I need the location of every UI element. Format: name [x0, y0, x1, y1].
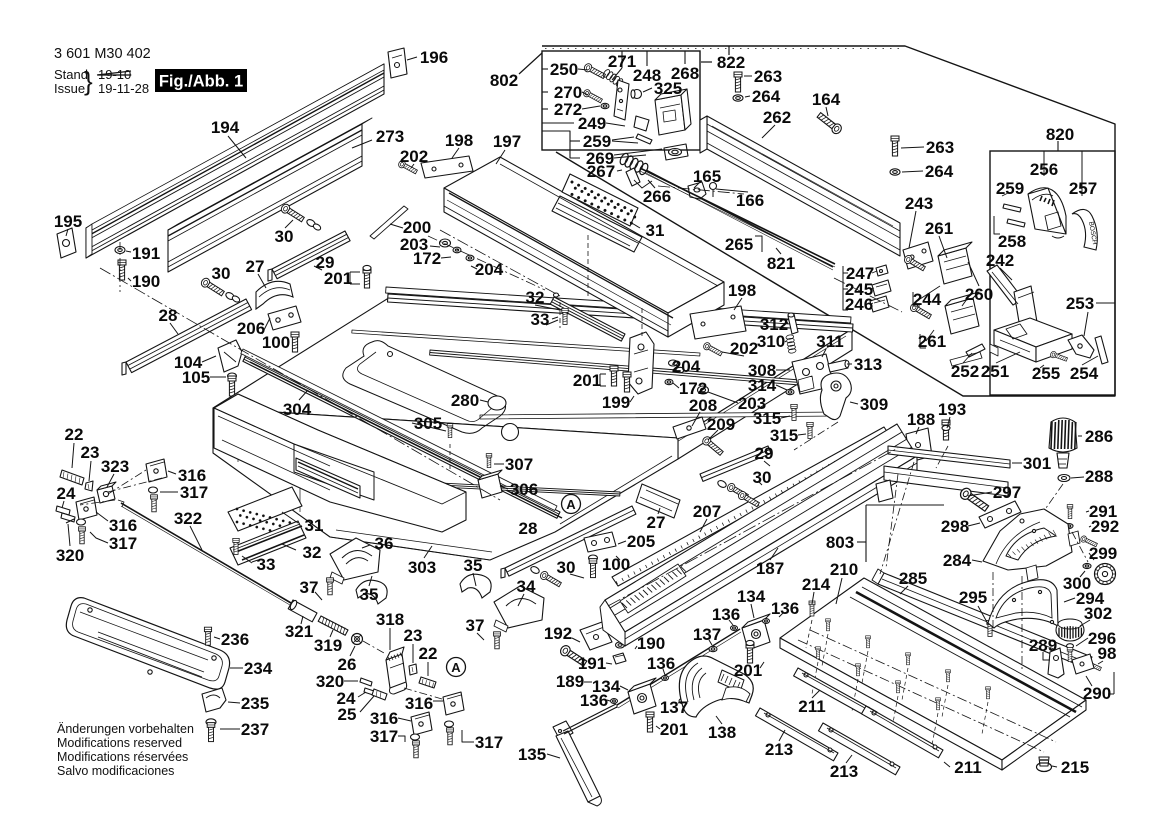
svg-text:316: 316: [370, 709, 398, 728]
svg-text:303: 303: [408, 558, 436, 577]
svg-text:254: 254: [1070, 364, 1099, 383]
svg-text:204: 204: [672, 357, 701, 376]
svg-text:255: 255: [1032, 364, 1060, 383]
svg-text:191: 191: [578, 654, 606, 673]
svg-text:302: 302: [1084, 604, 1112, 623]
svg-text:30: 30: [557, 558, 576, 577]
svg-text:261: 261: [925, 219, 953, 238]
svg-text:137: 137: [693, 625, 721, 644]
svg-text:262: 262: [763, 108, 791, 127]
svg-text:236: 236: [221, 630, 249, 649]
svg-text:196: 196: [420, 48, 448, 67]
svg-text:164: 164: [812, 90, 841, 109]
svg-text:246: 246: [845, 295, 873, 314]
svg-text:822: 822: [717, 53, 745, 72]
svg-text:306: 306: [510, 480, 538, 499]
svg-text:320: 320: [56, 546, 84, 565]
svg-text:32: 32: [526, 288, 545, 307]
svg-text:266: 266: [643, 187, 671, 206]
svg-text:211: 211: [798, 697, 825, 716]
svg-text:211: 211: [954, 758, 981, 777]
svg-text:33: 33: [531, 310, 550, 329]
svg-text:35: 35: [360, 585, 379, 604]
svg-text:A: A: [451, 660, 461, 675]
svg-text:199: 199: [602, 393, 630, 412]
svg-text:}: }: [84, 66, 93, 96]
svg-text:190: 190: [132, 272, 160, 291]
svg-text:265: 265: [725, 235, 753, 254]
svg-text:267: 267: [587, 162, 615, 181]
svg-text:244: 244: [913, 290, 942, 309]
svg-text:Stand: Stand: [54, 67, 88, 82]
svg-text:172: 172: [413, 249, 441, 268]
svg-text:136: 136: [580, 691, 608, 710]
svg-text:325: 325: [654, 79, 682, 98]
svg-text:215: 215: [1061, 758, 1089, 777]
svg-text:288: 288: [1085, 467, 1113, 486]
svg-text:311: 311: [816, 332, 843, 351]
svg-text:309: 309: [860, 395, 888, 414]
svg-text:22: 22: [419, 644, 438, 663]
svg-text:100: 100: [262, 333, 290, 352]
svg-text:193: 193: [938, 400, 966, 419]
svg-text:138: 138: [708, 723, 736, 742]
svg-text:165: 165: [693, 167, 721, 186]
svg-text:264: 264: [752, 87, 781, 106]
svg-text:318: 318: [376, 610, 404, 629]
svg-text:295: 295: [959, 588, 987, 607]
svg-text:Modifications réservées: Modifications réservées: [57, 750, 188, 764]
svg-text:249: 249: [578, 114, 606, 133]
svg-text:315: 315: [770, 426, 798, 445]
svg-text:198: 198: [728, 281, 756, 300]
svg-text:201: 201: [573, 371, 601, 390]
svg-text:35: 35: [464, 556, 483, 575]
svg-text:821: 821: [767, 254, 795, 273]
svg-text:A: A: [566, 497, 576, 512]
svg-text:310: 310: [757, 332, 785, 351]
svg-text:213: 213: [830, 762, 858, 781]
svg-text:33: 33: [257, 555, 276, 574]
svg-text:37: 37: [466, 616, 485, 635]
svg-text:136: 136: [771, 599, 799, 618]
svg-text:34: 34: [517, 577, 536, 596]
svg-text:27: 27: [647, 513, 666, 532]
svg-text:31: 31: [305, 516, 324, 535]
svg-text:3 601 M30 402: 3 601 M30 402: [54, 46, 151, 62]
svg-text:Modifications reserved: Modifications reserved: [57, 736, 182, 750]
svg-text:98: 98: [1098, 644, 1117, 663]
svg-text:307: 307: [505, 455, 533, 474]
svg-text:195: 195: [54, 212, 82, 231]
svg-text:189: 189: [556, 672, 584, 691]
svg-text:135: 135: [518, 745, 546, 764]
svg-text:235: 235: [241, 694, 269, 713]
svg-text:209: 209: [707, 415, 735, 434]
svg-text:190: 190: [637, 634, 665, 653]
svg-text:242: 242: [986, 251, 1014, 270]
svg-text:198: 198: [445, 131, 473, 150]
svg-text:252: 252: [951, 362, 979, 381]
svg-text:301: 301: [1023, 454, 1051, 473]
svg-text:323: 323: [101, 457, 129, 476]
svg-text:317: 317: [180, 483, 208, 502]
svg-text:Fig./Abb. 1: Fig./Abb. 1: [159, 73, 243, 91]
svg-text:250: 250: [550, 60, 578, 79]
svg-text:204: 204: [475, 260, 504, 279]
svg-text:197: 197: [493, 132, 521, 151]
svg-text:304: 304: [283, 400, 312, 419]
svg-text:27: 27: [246, 257, 265, 276]
svg-text:284: 284: [943, 551, 972, 570]
svg-text:316: 316: [405, 694, 433, 713]
svg-text:201: 201: [734, 661, 762, 680]
svg-text:321: 321: [285, 622, 313, 641]
svg-text:286: 286: [1085, 427, 1113, 446]
svg-text:37: 37: [300, 578, 319, 597]
svg-text:105: 105: [182, 368, 210, 387]
svg-text:264: 264: [925, 162, 954, 181]
svg-text:22: 22: [65, 425, 84, 444]
svg-text:194: 194: [211, 118, 240, 137]
svg-text:100: 100: [602, 555, 630, 574]
svg-text:23: 23: [404, 626, 423, 645]
svg-text:192: 192: [544, 624, 572, 643]
svg-text:191: 191: [132, 244, 160, 263]
svg-text:263: 263: [754, 67, 782, 86]
svg-text:187: 187: [756, 559, 784, 578]
svg-text:214: 214: [802, 575, 831, 594]
svg-text:134: 134: [737, 587, 766, 606]
svg-text:201: 201: [324, 269, 352, 288]
svg-text:136: 136: [647, 654, 675, 673]
svg-text:28: 28: [519, 519, 538, 538]
svg-text:202: 202: [730, 339, 758, 358]
svg-text:299: 299: [1089, 544, 1117, 563]
svg-text:25: 25: [338, 705, 357, 724]
svg-text:207: 207: [693, 502, 721, 521]
svg-text:317: 317: [109, 534, 137, 553]
svg-text:23: 23: [81, 443, 100, 462]
svg-text:803: 803: [826, 533, 854, 552]
svg-text:188: 188: [907, 410, 935, 429]
svg-text:Salvo modificaciones: Salvo modificaciones: [57, 764, 174, 778]
svg-text:297: 297: [993, 483, 1021, 502]
svg-text:259: 259: [996, 179, 1024, 198]
svg-text:257: 257: [1069, 179, 1097, 198]
svg-text:28: 28: [159, 306, 178, 325]
svg-text:273: 273: [376, 127, 404, 146]
svg-text:280: 280: [451, 391, 479, 410]
svg-text:24: 24: [57, 484, 76, 503]
svg-text:260: 260: [965, 285, 993, 304]
svg-text:234: 234: [244, 659, 273, 678]
svg-text:202: 202: [400, 147, 428, 166]
svg-text:289: 289: [1029, 636, 1057, 655]
svg-text:30: 30: [275, 227, 294, 246]
svg-text:137: 137: [660, 698, 688, 717]
svg-text:290: 290: [1083, 684, 1111, 703]
svg-text:210: 210: [830, 560, 858, 579]
svg-text:292: 292: [1091, 517, 1119, 536]
svg-text:Änderungen vorbehalten: Änderungen vorbehalten: [57, 722, 194, 736]
svg-text:305: 305: [414, 414, 442, 433]
svg-text:298: 298: [941, 517, 969, 536]
svg-text:253: 253: [1066, 294, 1094, 313]
svg-text:317: 317: [370, 727, 398, 746]
svg-text:261: 261: [918, 332, 946, 351]
svg-text:263: 263: [926, 138, 954, 157]
svg-text:237: 237: [241, 720, 269, 739]
svg-text:213: 213: [765, 740, 793, 759]
svg-text:166: 166: [736, 191, 764, 210]
svg-text:820: 820: [1046, 125, 1074, 144]
svg-text:313: 313: [854, 355, 882, 374]
svg-text:29: 29: [755, 444, 774, 463]
svg-text:256: 256: [1030, 160, 1058, 179]
svg-text:258: 258: [998, 232, 1026, 251]
svg-text:322: 322: [174, 509, 202, 528]
svg-text:36: 36: [375, 534, 394, 553]
svg-text:32: 32: [303, 543, 322, 562]
svg-text:19-11-28: 19-11-28: [98, 81, 149, 96]
svg-text:314: 314: [748, 376, 777, 395]
svg-text:Issue: Issue: [54, 81, 85, 96]
svg-text:30: 30: [753, 468, 772, 487]
svg-text:251: 251: [981, 362, 1009, 381]
svg-text:802: 802: [490, 71, 518, 90]
svg-text:201: 201: [660, 720, 688, 739]
svg-text:285: 285: [899, 569, 927, 588]
svg-text:136: 136: [712, 605, 740, 624]
svg-text:317: 317: [475, 733, 503, 752]
svg-text:31: 31: [646, 221, 665, 240]
svg-text:205: 205: [627, 532, 655, 551]
svg-text:30: 30: [212, 264, 231, 283]
svg-text:243: 243: [905, 194, 933, 213]
svg-text:208: 208: [689, 396, 717, 415]
svg-text:319: 319: [314, 636, 342, 655]
svg-text:316: 316: [109, 516, 137, 535]
